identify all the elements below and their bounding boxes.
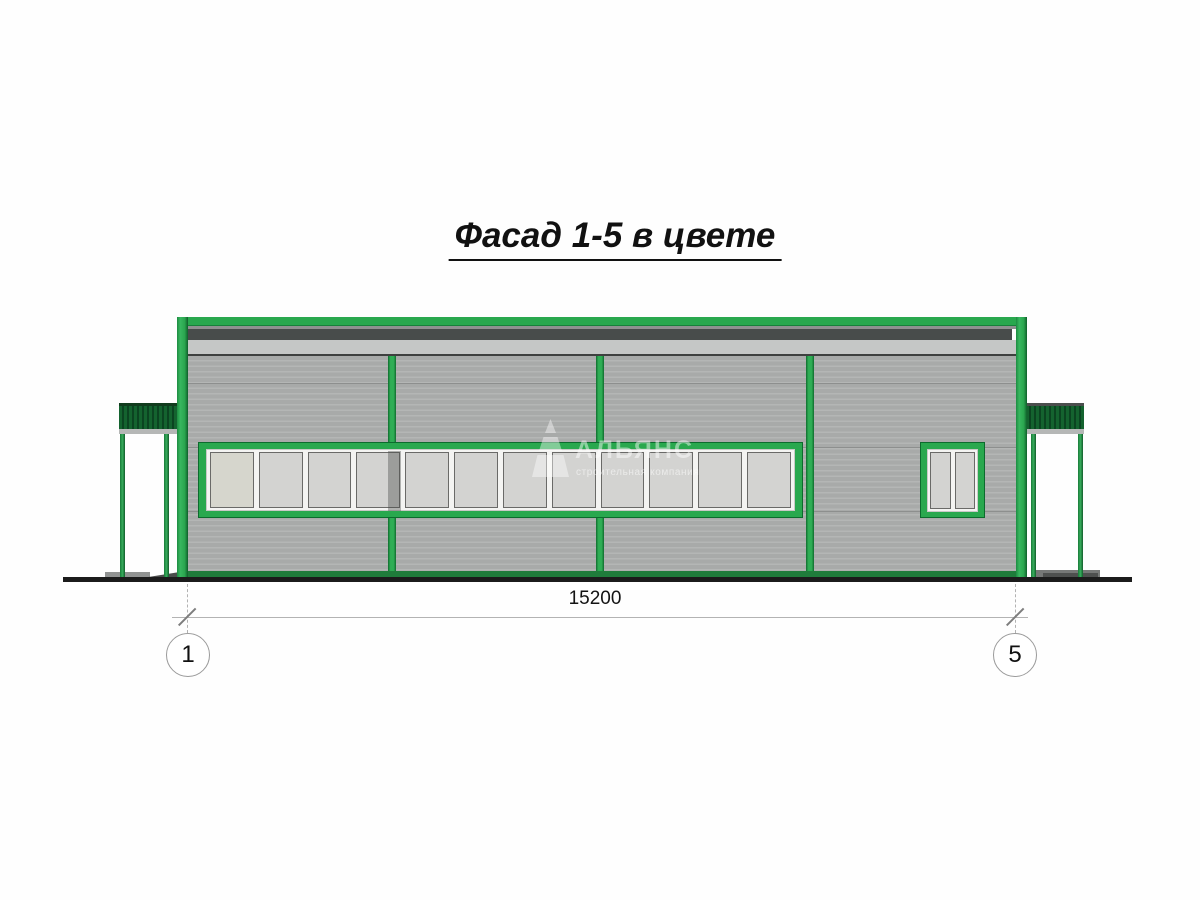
parapet-green-band	[177, 317, 1026, 326]
axis-marker-5: 5	[993, 633, 1037, 677]
facade-mullion	[806, 356, 814, 571]
extension-line-left	[187, 584, 188, 633]
dimension-line	[172, 617, 1028, 618]
window-pane	[649, 452, 693, 508]
canopy-roof	[119, 403, 177, 429]
fascia-light-band	[187, 340, 1017, 356]
axis-marker-1-label: 1	[181, 641, 194, 669]
canopy-post	[1031, 434, 1036, 577]
canopy-roof	[1026, 403, 1084, 429]
window-pane	[747, 452, 791, 508]
facade-drawing-canvas: Фасад 1-5 в цвете	[0, 0, 1200, 900]
window-pane	[955, 452, 976, 509]
window-band	[198, 442, 803, 518]
dimension-label: 15200	[569, 588, 622, 610]
axis-marker-1: 1	[166, 633, 210, 677]
small-window-frame	[927, 449, 978, 512]
window-pane	[698, 452, 742, 508]
axis-marker-5-label: 5	[1008, 641, 1021, 669]
window-pane	[308, 452, 352, 508]
canopy-post	[1078, 434, 1083, 577]
window-pane	[454, 452, 498, 508]
drawing-title: Фасад 1-5 в цвете	[449, 216, 782, 261]
window-pane	[552, 452, 596, 508]
extension-line-right	[1015, 584, 1016, 633]
mullion-shadow	[388, 451, 401, 511]
canopy-post	[120, 434, 125, 577]
corner-column-right	[1016, 317, 1027, 577]
window-band-panes	[210, 452, 791, 508]
window-pane	[503, 452, 547, 508]
window-pane	[405, 452, 449, 508]
corner-column-left	[177, 317, 188, 577]
window-pane	[210, 452, 254, 508]
ground-line	[63, 577, 1132, 582]
window-pane	[259, 452, 303, 508]
window-band-frame	[206, 449, 795, 511]
window-pane	[601, 452, 645, 508]
canopy-post	[164, 434, 169, 577]
small-window-panes	[930, 452, 975, 509]
fascia-dark-band	[187, 329, 1012, 340]
small-window	[920, 442, 985, 518]
window-pane	[930, 452, 951, 509]
